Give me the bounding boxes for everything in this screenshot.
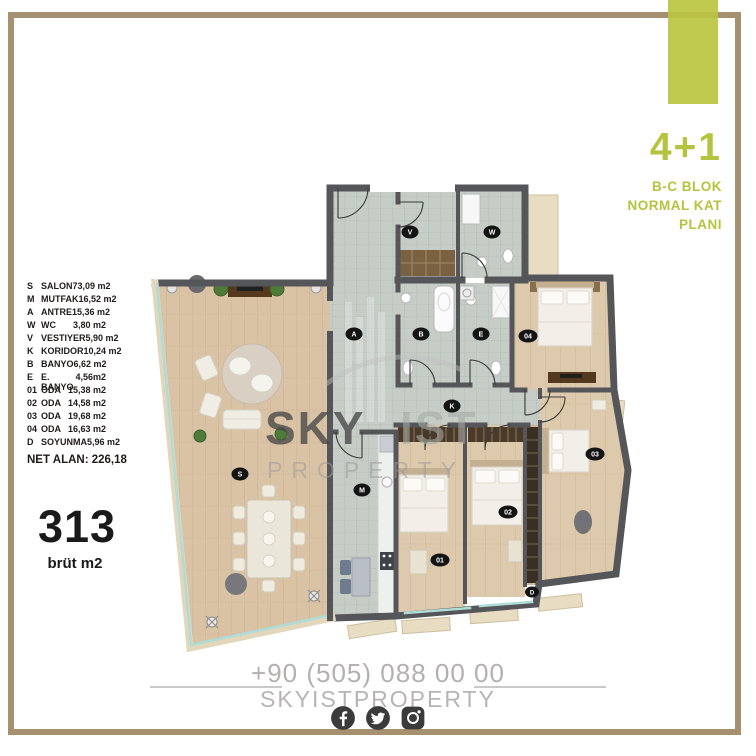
label-oda4: 04 (519, 330, 538, 343)
label-vestiyer: V (402, 226, 419, 239)
kitchen-table (352, 558, 370, 596)
brand-accent-bar (668, 0, 718, 104)
label-oda1: 01 (431, 554, 450, 567)
legend-row: SSALON73,09 m2 (27, 281, 106, 294)
legend-area: 6,62 m2 (74, 359, 107, 369)
legend-name: BANYO (41, 359, 74, 369)
legend-name: KORIDOR (41, 346, 84, 356)
legend-area: 16,63 m2 (68, 424, 106, 434)
legend-area: 14,58 m2 (68, 398, 106, 408)
legend-code: D (27, 437, 41, 447)
legend-row: KKORIDOR10,24 m2 (27, 346, 106, 359)
legend-name: WC (41, 320, 73, 330)
armchair (251, 374, 273, 392)
plant (194, 430, 206, 442)
kitchen-chair (340, 560, 351, 575)
legend-code: M (27, 294, 41, 304)
svg-text:K: K (449, 404, 454, 411)
rug (222, 344, 282, 404)
label-soyunma: D (525, 587, 539, 598)
label-salon: S (232, 468, 249, 481)
svg-text:04: 04 (524, 334, 532, 341)
pouf (574, 510, 592, 534)
legend-code: E (27, 372, 41, 382)
legend-area: 5,90 m2 (86, 333, 119, 343)
tv (237, 286, 263, 291)
wall-niche (370, 183, 455, 192)
legend-name: SOYUNMA (41, 437, 87, 447)
washing-machine (460, 286, 474, 300)
legend-area: 5,96 m2 (87, 437, 120, 447)
label-koridor: K (444, 400, 461, 413)
toilet (503, 249, 513, 263)
legend-name: ODA (41, 411, 68, 421)
legend-area: 3,80 m2 (73, 320, 106, 330)
ceiling-fan (308, 590, 320, 602)
label-ebanyo: E (473, 328, 490, 341)
legend-row: 03ODA19,68 m2 (27, 411, 106, 424)
legend-area: 19,68 m2 (68, 411, 106, 421)
phone-number: +90 (505) 088 00 00 (0, 658, 756, 689)
svg-text:03: 03 (591, 452, 599, 459)
label-banyo: B (413, 328, 430, 341)
legend-row: 02ODA14,58 m2 (27, 398, 106, 411)
legend-row: 01ODA15,38 m2 (27, 385, 106, 398)
net-area-label: NET ALAN: 226,18 (27, 454, 137, 466)
washbasin (401, 293, 411, 303)
label-mutfak: M (354, 484, 371, 497)
legend-code: A (27, 307, 41, 317)
legend-row: BBANYO6,62 m2 (27, 359, 106, 372)
room-legend: SSALON73,09 m2 MMUTFAK16,52 m2 AANTRE15,… (27, 281, 106, 450)
bed (542, 428, 549, 474)
instagram-icon[interactable] (400, 705, 426, 731)
label-antre: A (346, 328, 363, 341)
poster-canvas: 4+1 B-C BLOK NORMAL KAT PLANI SSALON73,0… (0, 0, 756, 756)
floor-plan: SKY IST PROPERTY S M A V W B E K 01 02 0… (140, 172, 660, 672)
legend-row: 04ODA16,63 m2 (27, 424, 106, 437)
svg-text:01: 01 (436, 558, 444, 565)
legend-row: VVESTIYER5,90 m2 (27, 333, 106, 346)
legend-row: EE. BANYO4,56m2 (27, 372, 106, 385)
legend-code: S (27, 281, 41, 291)
legend-code: 02 (27, 398, 41, 408)
legend-area: 10,24 m2 (84, 346, 122, 356)
svg-text:S: S (238, 472, 243, 479)
facebook-icon[interactable] (330, 705, 356, 731)
legend-code: B (27, 359, 41, 369)
legend-row: WWC3,80 m2 (27, 320, 106, 333)
armchair (229, 357, 251, 375)
legend-row: MMUTFAK16,52 m2 (27, 294, 106, 307)
gross-area-number: 313 (38, 504, 112, 549)
nightstand (530, 282, 537, 292)
svg-text:D: D (530, 591, 535, 597)
legend-name: MUTFAK (41, 294, 79, 304)
twitter-icon[interactable] (365, 705, 391, 731)
legend-area: 15,36 m2 (72, 307, 110, 317)
social-icons-row (0, 705, 756, 731)
svg-text:A: A (351, 332, 356, 339)
svg-text:B: B (418, 332, 423, 339)
legend-code: 03 (27, 411, 41, 421)
legend-code: W (27, 320, 41, 330)
legend-area: 73,09 m2 (73, 281, 111, 291)
gross-area-unit: brüt m2 (38, 555, 112, 572)
legend-area: 16,52 m2 (79, 294, 117, 304)
svg-text:V: V (408, 230, 413, 237)
legend-area: 4,56m2 (75, 372, 106, 382)
legend-row: AANTRE15,36 m2 (27, 307, 106, 320)
pouf (225, 573, 247, 595)
label-wc: W (484, 226, 501, 239)
legend-code: V (27, 333, 41, 343)
desk (410, 550, 427, 574)
legend-area: 15,38 m2 (68, 385, 106, 395)
legend-code: 04 (27, 424, 41, 434)
ceiling-fan (206, 616, 218, 628)
toilet (403, 361, 413, 375)
svg-text:W: W (489, 230, 496, 237)
svg-text:02: 02 (504, 510, 512, 517)
stove (380, 552, 394, 570)
kitchen-chair (340, 579, 351, 594)
watermark-word-sky: SKY (265, 402, 366, 454)
shower (462, 194, 480, 224)
watermark-word-property: PROPERTY (267, 457, 465, 483)
legend-code: 01 (27, 385, 41, 395)
nightstand (593, 282, 600, 292)
legend-name: ODA (41, 398, 68, 408)
legend-name: VESTIYER (41, 333, 86, 343)
unit-type-label: 4+1 (628, 128, 723, 167)
bed (470, 460, 524, 467)
svg-text:M: M (359, 488, 365, 495)
room-antre (330, 188, 398, 432)
legend-name: SALON (41, 281, 73, 291)
svg-text:E: E (479, 332, 484, 339)
legend-row: DSOYUNMA5,96 m2 (27, 437, 106, 450)
label-oda2: 02 (499, 506, 518, 519)
legend-name: ODA (41, 424, 68, 434)
desk (508, 540, 522, 562)
label-oda3: 03 (586, 448, 605, 461)
watermark-word-ist: IST (400, 402, 478, 454)
gross-area-block: 313 brüt m2 (38, 504, 112, 572)
legend-name: ANTRE (41, 307, 72, 317)
legend-name: ODA (41, 385, 68, 395)
legend-code: K (27, 346, 41, 356)
